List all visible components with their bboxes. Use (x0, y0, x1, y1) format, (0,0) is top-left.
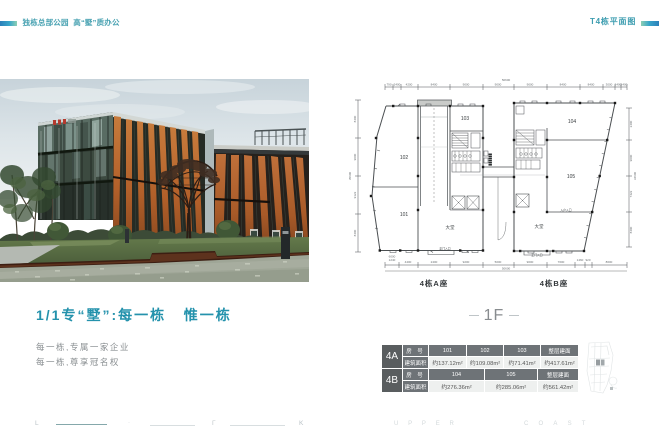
svg-text:8400: 8400 (560, 83, 567, 87)
svg-text:9122: 9122 (353, 191, 357, 198)
svg-text:9000: 9000 (353, 153, 357, 160)
svg-text:920: 920 (585, 258, 590, 262)
svg-text:9000: 9000 (495, 83, 502, 87)
svg-text:50600: 50600 (502, 267, 511, 271)
svg-text:9000: 9000 (629, 154, 633, 161)
svg-text:入户入口: 入户入口 (560, 208, 571, 212)
svg-text:1460: 1460 (577, 258, 584, 262)
svg-text:大堂: 大堂 (535, 223, 544, 230)
svg-text:103: 103 (461, 116, 470, 122)
svg-text:4栋A座: 4栋A座 (420, 278, 449, 288)
svg-text:2400: 2400 (621, 83, 628, 87)
svg-text:7600: 7600 (558, 260, 565, 264)
svg-text:790: 790 (386, 83, 391, 87)
svg-text:9000: 9000 (527, 83, 534, 87)
svg-text:大堂: 大堂 (446, 224, 455, 231)
svg-text:2400: 2400 (431, 260, 438, 264)
svg-text:50600: 50600 (502, 78, 511, 82)
svg-text:8400: 8400 (431, 83, 438, 87)
svg-text:4栋B座: 4栋B座 (540, 278, 569, 288)
svg-text:5000: 5000 (495, 260, 502, 264)
svg-text:4400: 4400 (405, 260, 412, 264)
svg-text:2400: 2400 (394, 83, 401, 87)
svg-text:4200: 4200 (406, 83, 413, 87)
svg-text:104: 104 (568, 119, 577, 125)
svg-text:正门入口: 正门入口 (531, 253, 542, 257)
svg-text:8400: 8400 (629, 226, 633, 233)
svg-text:9000: 9000 (463, 83, 470, 87)
svg-text:3000: 3000 (606, 83, 613, 87)
svg-text:35600: 35600 (348, 171, 352, 180)
svg-text:9200: 9200 (463, 260, 470, 264)
svg-text:2400: 2400 (629, 120, 633, 127)
svg-text:8400: 8400 (353, 229, 357, 236)
svg-text:6000: 6000 (389, 255, 396, 259)
svg-text:101: 101 (400, 212, 409, 218)
svg-text:102: 102 (400, 155, 409, 161)
svg-text:正门入口: 正门入口 (439, 247, 450, 251)
svg-text:8400: 8400 (353, 115, 357, 122)
svg-text:8600: 8600 (606, 260, 613, 264)
svg-text:9000: 9000 (527, 260, 534, 264)
svg-text:105: 105 (567, 174, 576, 180)
svg-text:8400: 8400 (588, 83, 595, 87)
svg-text:34600: 34600 (633, 171, 637, 180)
svg-text:7422: 7422 (629, 190, 633, 197)
svg-text:1240: 1240 (389, 258, 396, 262)
